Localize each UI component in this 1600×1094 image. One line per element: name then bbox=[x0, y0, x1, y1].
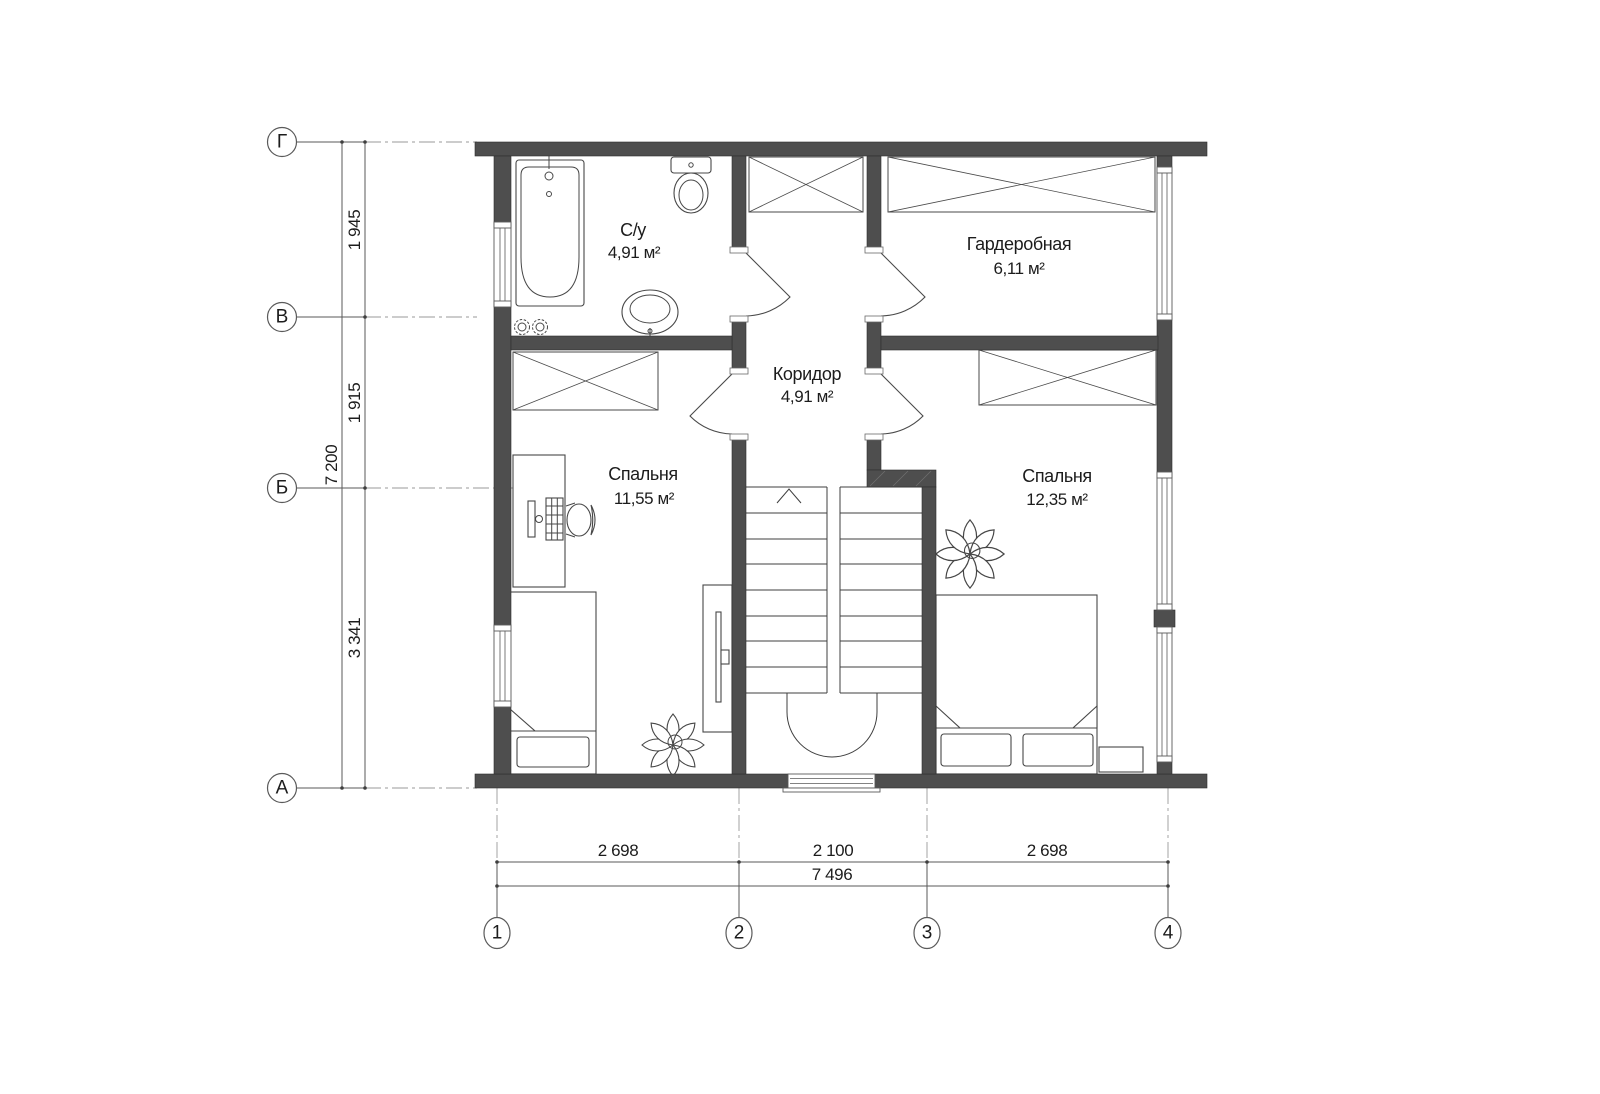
window-bedroom-left bbox=[494, 625, 511, 707]
room-area-corridor: 4,91 м² bbox=[781, 387, 834, 406]
keyboard bbox=[546, 498, 563, 540]
room-area-wardrobe: 6,11 м² bbox=[993, 259, 1045, 278]
plant-bedroom-left bbox=[642, 714, 704, 776]
bathtub bbox=[516, 155, 584, 306]
bed-single bbox=[510, 592, 596, 774]
toilet bbox=[671, 157, 711, 213]
dim-left-seg3: 3 341 bbox=[345, 618, 364, 659]
closet-corridor bbox=[749, 157, 863, 212]
wall-divider-left bbox=[511, 336, 732, 350]
wall-right-stub-top bbox=[1157, 156, 1172, 167]
closet-bedroom-left bbox=[513, 352, 658, 410]
wall-a-seg1 bbox=[732, 156, 746, 247]
closet-bedroom-right bbox=[979, 350, 1156, 405]
bed-double-pillow-right bbox=[1023, 734, 1093, 766]
tv-unit bbox=[703, 585, 732, 732]
dim-bottom-seg2: 2 100 bbox=[813, 841, 854, 860]
grid-label-col-4: 4 bbox=[1163, 923, 1174, 944]
window-bedroom-right-lower bbox=[1157, 627, 1172, 762]
wall-right-seg2 bbox=[1157, 320, 1172, 472]
wall-b-seg2 bbox=[867, 322, 881, 368]
tv-screen bbox=[716, 612, 721, 702]
room-label-corridor: Коридор bbox=[773, 364, 842, 384]
bed-single-pillow bbox=[517, 737, 589, 767]
wall-a-seg3 bbox=[732, 440, 746, 774]
dim-left-seg2: 1 915 bbox=[345, 383, 364, 424]
room-label-wardrobe: Гардеробная bbox=[967, 234, 1072, 254]
room-area-bathroom: 4,91 м² bbox=[608, 243, 661, 262]
grid-label-col-1: 1 bbox=[492, 923, 503, 944]
wall-right-stub-bottom bbox=[1157, 762, 1172, 774]
plant-right-petals bbox=[936, 520, 1004, 588]
room-area-bedroom-left: 11,55 м² bbox=[614, 489, 675, 508]
grid-label-col-2: 2 bbox=[734, 923, 745, 944]
dim-bottom-seg3: 2 698 bbox=[1027, 841, 1068, 860]
nightstand bbox=[1099, 747, 1143, 772]
bed-double bbox=[936, 595, 1097, 774]
dim-bottom-total: 7 496 bbox=[812, 865, 853, 884]
grid-label-row-b: Б bbox=[276, 478, 288, 499]
chair-seat bbox=[567, 504, 591, 536]
room-label-bedroom-right: Спальня bbox=[1022, 466, 1092, 486]
wall-exterior-bottom-left bbox=[475, 774, 788, 788]
wall-right-pier bbox=[1154, 610, 1175, 627]
window-wardrobe bbox=[1157, 167, 1172, 320]
grid-label-col-3: 3 bbox=[922, 923, 933, 944]
grid-label-row-v: В bbox=[276, 307, 289, 328]
dim-left-seg1: 1 945 bbox=[345, 210, 364, 251]
monitor bbox=[528, 501, 535, 537]
floor-plan-page: С/у 4,91 м² Гардеробная 6,11 м² Коридор … bbox=[0, 0, 1600, 1094]
window-bathroom bbox=[494, 222, 511, 307]
dim-left-total: 7 200 bbox=[322, 445, 341, 486]
room-area-bedroom-right: 12,35 м² bbox=[1026, 490, 1088, 509]
wall-divider-right bbox=[881, 336, 1158, 350]
wall-a-seg2 bbox=[732, 322, 746, 368]
wall-left-seg2 bbox=[494, 307, 511, 625]
wall-left-seg1 bbox=[494, 156, 511, 222]
window-stair-landing bbox=[783, 774, 880, 792]
plant-left-petals bbox=[642, 714, 704, 776]
tv-mount bbox=[721, 650, 729, 664]
closet-wardrobe-room bbox=[888, 157, 1155, 212]
desk bbox=[513, 455, 565, 587]
window-bedroom-right-upper bbox=[1157, 472, 1172, 610]
wall-b-seg1 bbox=[867, 156, 881, 247]
floor-plan-canvas: С/у 4,91 м² Гардеробная 6,11 м² Коридор … bbox=[0, 0, 1600, 1094]
toilet-tank bbox=[671, 157, 711, 173]
wall-left-seg3 bbox=[494, 707, 511, 774]
wall-exterior-bottom-right bbox=[875, 774, 1207, 788]
grid-label-row-a: А bbox=[276, 778, 289, 799]
wall-stair-right bbox=[922, 487, 936, 774]
plant-bedroom-right bbox=[936, 520, 1004, 588]
room-label-bedroom-left: Спальня bbox=[608, 464, 678, 484]
bed-double-pillow-left bbox=[941, 734, 1011, 766]
room-label-bathroom: С/у bbox=[620, 220, 646, 240]
wall-exterior-top bbox=[475, 142, 1207, 156]
wall-b-seg3 bbox=[867, 440, 881, 470]
dim-bottom-seg1: 2 698 bbox=[598, 841, 639, 860]
grid-label-row-g: Г bbox=[277, 132, 287, 153]
